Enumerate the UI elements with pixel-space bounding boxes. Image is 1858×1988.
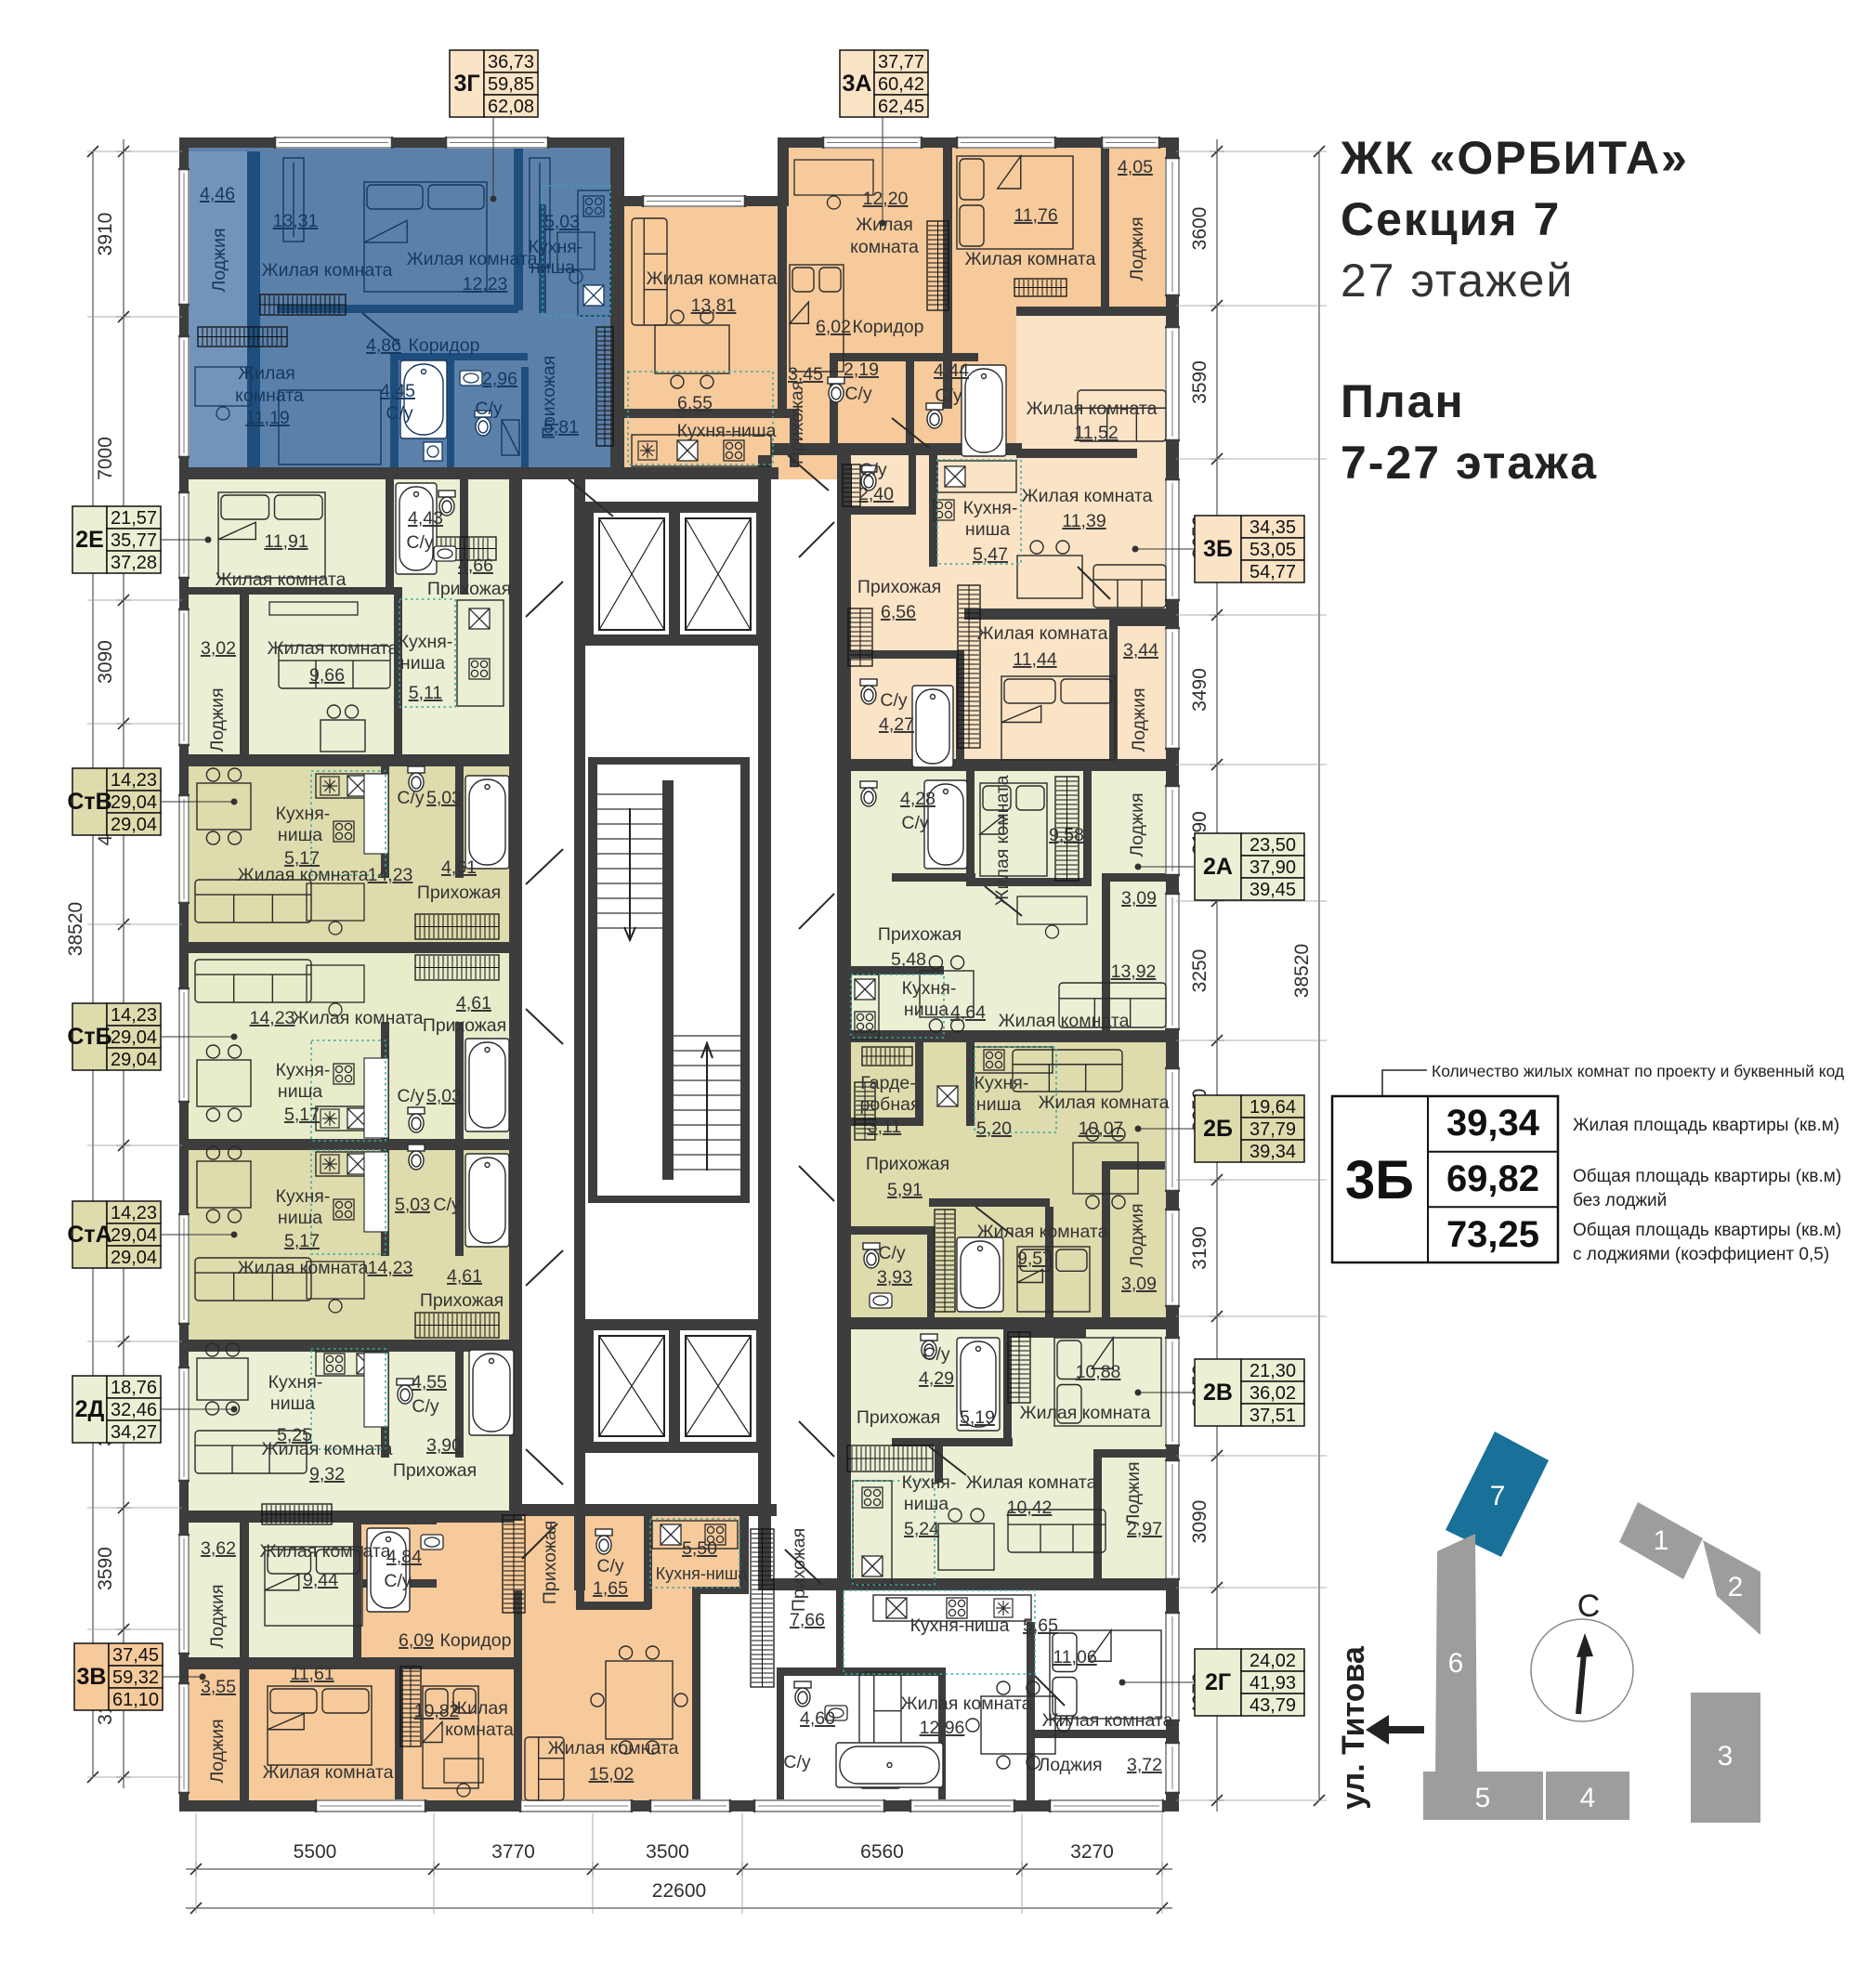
svg-text:4,61: 4,61 [441, 857, 477, 878]
svg-text:3090: 3090 [95, 640, 116, 684]
svg-text:19,64: 19,64 [1250, 1097, 1296, 1118]
svg-text:Лоджия: Лоджия [1127, 1203, 1147, 1267]
svg-text:ниша: ниша [904, 1000, 949, 1020]
svg-text:Жилая комната: Жилая комната [1022, 486, 1153, 506]
svg-text:3490: 3490 [1189, 668, 1210, 712]
svg-text:5,03: 5,03 [426, 1086, 462, 1106]
svg-text:С/у: С/у [901, 813, 929, 833]
svg-text:37,28: 37,28 [111, 553, 157, 573]
svg-text:Жилая комната: Жилая комната [262, 260, 393, 281]
svg-text:35,77: 35,77 [111, 530, 157, 551]
svg-text:Жилая площадь квартиры (кв.м): Жилая площадь квартиры (кв.м) [1573, 1116, 1839, 1135]
svg-text:3770: 3770 [491, 1841, 535, 1863]
svg-text:4,61: 4,61 [447, 1266, 482, 1287]
svg-text:5,24: 5,24 [904, 1519, 939, 1539]
svg-text:23,50: 23,50 [1250, 835, 1296, 856]
svg-text:11,19: 11,19 [245, 408, 289, 428]
svg-text:4,46: 4,46 [200, 184, 235, 204]
svg-text:53,05: 53,05 [1250, 540, 1296, 560]
svg-text:36,73: 36,73 [488, 52, 534, 72]
svg-text:2Г: 2Г [1205, 1669, 1231, 1695]
svg-text:3,09: 3,09 [1121, 888, 1157, 909]
svg-text:Жилая комната: Жилая комната [966, 1472, 1097, 1493]
svg-text:4,64: 4,64 [950, 1002, 986, 1023]
svg-text:2Д: 2Д [75, 1396, 105, 1422]
svg-text:7-27 этажа: 7-27 этажа [1341, 437, 1598, 489]
svg-text:39,34: 39,34 [1446, 1103, 1540, 1144]
svg-text:ниша: ниша [278, 825, 322, 845]
svg-text:10,88: 10,88 [1076, 1362, 1121, 1382]
svg-text:5,03: 5,03 [426, 788, 462, 808]
svg-text:2Е: 2Е [75, 527, 104, 553]
svg-text:Жилая комната: Жилая комната [262, 1439, 393, 1459]
svg-text:Прихожая: Прихожая [866, 1154, 949, 1174]
svg-text:24,02: 24,02 [1250, 1651, 1296, 1671]
svg-text:С/у: С/у [859, 460, 887, 480]
svg-text:4,55: 4,55 [412, 1372, 447, 1393]
svg-text:Количество жилых комнат по про: Количество жилых комнат по проекту и бук… [1432, 1062, 1844, 1080]
svg-text:13,31: 13,31 [273, 211, 319, 231]
svg-text:3,11: 3,11 [868, 1117, 902, 1137]
svg-text:Прихожая: Прихожая [857, 577, 941, 597]
svg-text:3,55: 3,55 [201, 1677, 236, 1697]
svg-text:38520: 38520 [65, 902, 86, 956]
svg-text:41,93: 41,93 [1250, 1673, 1296, 1694]
svg-text:4,29: 4,29 [919, 1368, 954, 1389]
svg-text:Жилая комната: Жилая комната [1020, 1403, 1151, 1423]
svg-text:Гарде-: Гарде- [860, 1073, 915, 1093]
svg-text:Жилая: Жилая [451, 1698, 508, 1719]
svg-text:Жилая комната: Жилая комната [965, 249, 1096, 269]
svg-text:39,34: 39,34 [1250, 1142, 1296, 1162]
svg-text:Кухня-: Кухня- [963, 498, 1018, 518]
svg-text:5,11: 5,11 [409, 683, 443, 703]
svg-text:9,58: 9,58 [1049, 825, 1084, 845]
svg-text:Прихожая: Прихожая [878, 924, 962, 945]
svg-text:Общая площадь квартиры (кв.м): Общая площадь квартиры (кв.м) [1573, 1221, 1841, 1240]
svg-text:ниша: ниша [278, 1208, 322, 1228]
svg-text:9,32: 9,32 [309, 1464, 345, 1484]
svg-text:Общая площадь квартиры (кв.м): Общая площадь квартиры (кв.м) [1573, 1167, 1841, 1186]
svg-text:4,66: 4,66 [458, 556, 493, 576]
svg-text:6,02: 6,02 [816, 317, 851, 337]
svg-text:12,23: 12,23 [463, 274, 508, 294]
svg-text:3910: 3910 [95, 213, 116, 256]
svg-text:Кухня-: Кухня- [975, 1073, 1029, 1093]
svg-text:5,03: 5,03 [395, 1195, 430, 1215]
svg-text:5,50: 5,50 [682, 1538, 717, 1559]
svg-text:3,72: 3,72 [1127, 1755, 1162, 1775]
svg-text:С/у: С/у [596, 1556, 624, 1576]
svg-text:Кухня-: Кухня- [268, 1372, 323, 1393]
svg-text:54,77: 54,77 [1250, 562, 1296, 582]
svg-text:Лоджия: Лоджия [1129, 687, 1149, 752]
svg-text:62,45: 62,45 [878, 97, 924, 117]
svg-text:34,35: 34,35 [1250, 517, 1296, 538]
svg-text:С/у: С/у [412, 1396, 439, 1417]
svg-text:7,66: 7,66 [790, 1610, 825, 1630]
svg-text:5,17: 5,17 [284, 1231, 320, 1251]
svg-text:3А: 3А [843, 71, 872, 97]
svg-text:ул. Титова: ул. Титова [1336, 1645, 1371, 1810]
svg-text:Прихожая: Прихожая [787, 381, 807, 464]
svg-text:37,45: 37,45 [112, 1645, 159, 1666]
svg-text:СтВ: СтВ [67, 789, 111, 815]
svg-text:2А: 2А [1203, 854, 1233, 880]
svg-text:13,92: 13,92 [1111, 961, 1157, 982]
svg-text:ниша: ниша [400, 653, 445, 674]
svg-text:Прихожая: Прихожая [789, 1528, 809, 1612]
svg-text:6,55: 6,55 [677, 393, 713, 413]
svg-text:Жилая комната: Жилая комната [977, 623, 1108, 644]
svg-text:3190: 3190 [1189, 1226, 1210, 1270]
svg-text:Жилая комната: Жилая комната [647, 268, 778, 289]
svg-text:60,42: 60,42 [878, 74, 924, 95]
svg-text:6: 6 [1448, 1648, 1464, 1679]
svg-text:61,10: 61,10 [112, 1690, 159, 1710]
svg-text:Прихожая: Прихожая [420, 1290, 504, 1311]
svg-text:12,20: 12,20 [863, 189, 909, 209]
svg-text:Прихожая: Прихожая [417, 883, 501, 903]
svg-text:37,90: 37,90 [1250, 857, 1296, 878]
svg-text:С/у: С/у [935, 386, 962, 406]
svg-text:29,04: 29,04 [111, 1225, 157, 1246]
svg-text:29,04: 29,04 [111, 1027, 157, 1048]
svg-text:5,47: 5,47 [973, 544, 1008, 565]
svg-text:3,93: 3,93 [877, 1267, 912, 1288]
svg-text:14,23: 14,23 [111, 1203, 157, 1223]
svg-text:14,23: 14,23 [368, 865, 413, 885]
svg-text:С/у: С/у [922, 1344, 950, 1365]
svg-text:4,86: 4,86 [366, 335, 401, 356]
svg-text:73,25: 73,25 [1446, 1214, 1539, 1255]
svg-text:Жилая комната: Жилая комната [260, 1541, 391, 1562]
svg-text:22600: 22600 [652, 1880, 706, 1902]
svg-text:Жилая комната: Жилая комната [216, 569, 347, 590]
svg-text:3Б: 3Б [1345, 1150, 1414, 1210]
svg-text:37,77: 37,77 [878, 52, 924, 72]
svg-text:11,91: 11,91 [264, 531, 307, 552]
svg-text:Жилая комната: Жилая комната [407, 249, 538, 269]
svg-text:9,57: 9,57 [1017, 1249, 1053, 1269]
svg-text:Прихожая: Прихожая [393, 1460, 477, 1481]
svg-text:Кухня-: Кухня- [276, 1186, 331, 1207]
svg-text:9,66: 9,66 [309, 665, 345, 686]
svg-text:21,57: 21,57 [111, 508, 157, 529]
svg-text:2: 2 [1728, 1572, 1744, 1602]
svg-text:с лоджиями (коэффициент 0,5): с лоджиями (коэффициент 0,5) [1573, 1245, 1829, 1264]
svg-text:4,60: 4,60 [800, 1708, 835, 1729]
svg-text:37,51: 37,51 [1250, 1406, 1296, 1426]
svg-text:Коридор: Коридор [852, 317, 923, 337]
svg-text:43,79: 43,79 [1250, 1695, 1296, 1716]
svg-text:3,09: 3,09 [1121, 1274, 1157, 1294]
svg-text:59,85: 59,85 [488, 74, 534, 95]
svg-text:3Б: 3Б [1203, 536, 1233, 562]
svg-text:7: 7 [1490, 1481, 1506, 1511]
svg-text:11,76: 11,76 [1014, 205, 1057, 226]
svg-text:14,23: 14,23 [368, 1258, 413, 1278]
svg-text:Прихожая: Прихожая [423, 1015, 506, 1036]
svg-text:39,45: 39,45 [1250, 880, 1296, 900]
svg-text:2,96: 2,96 [482, 369, 517, 389]
svg-text:С/у: С/у [783, 1752, 811, 1772]
svg-text:комната: комната [445, 1720, 514, 1740]
svg-text:5: 5 [1475, 1783, 1491, 1813]
svg-text:С/у: С/у [384, 1571, 412, 1591]
svg-text:5,17: 5,17 [284, 1105, 320, 1125]
svg-text:2,97: 2,97 [1127, 1519, 1162, 1539]
svg-text:Кухня-ниша: Кухня-ниша [910, 1615, 1010, 1636]
svg-text:62,08: 62,08 [488, 97, 534, 117]
svg-text:3270: 3270 [1070, 1841, 1114, 1863]
svg-text:4,44: 4,44 [934, 360, 969, 381]
svg-text:21,30: 21,30 [1250, 1361, 1296, 1381]
svg-text:37,79: 37,79 [1250, 1119, 1296, 1140]
svg-text:Жилая комната: Жилая комната [1042, 1710, 1173, 1731]
svg-text:Жилая комната: Жилая комната [992, 775, 1013, 906]
svg-text:29,04: 29,04 [111, 792, 157, 813]
svg-text:С/у: С/у [880, 690, 908, 711]
svg-text:4,45: 4,45 [380, 381, 415, 401]
svg-text:Лоджия: Лоджия [207, 1719, 228, 1783]
svg-text:Жилая комната: Жилая комната [238, 865, 369, 885]
svg-text:2В: 2В [1203, 1380, 1233, 1406]
svg-text:ниша: ниша [270, 1393, 315, 1414]
svg-text:6560: 6560 [860, 1841, 904, 1863]
svg-text:Жилая комната: Жилая комната [263, 1762, 394, 1783]
svg-text:14,23: 14,23 [111, 770, 157, 791]
svg-text:14,23: 14,23 [250, 1008, 295, 1028]
svg-text:6,09: 6,09 [399, 1630, 434, 1651]
svg-text:3250: 3250 [1189, 949, 1210, 993]
svg-text:Кухня-: Кухня- [529, 237, 583, 257]
svg-text:5,65: 5,65 [1023, 1615, 1058, 1636]
svg-text:10,42: 10,42 [1007, 1498, 1053, 1518]
svg-text:32,46: 32,46 [111, 1400, 157, 1420]
svg-text:Лоджия: Лоджия [1038, 1755, 1102, 1775]
svg-text:9,44: 9,44 [303, 1570, 338, 1590]
svg-text:Кухня-: Кухня- [902, 978, 957, 999]
svg-text:36,02: 36,02 [1250, 1383, 1296, 1404]
svg-text:4: 4 [1580, 1783, 1596, 1813]
svg-text:Лоджия: Лоджия [1127, 216, 1147, 281]
svg-text:38520: 38520 [1291, 944, 1313, 998]
svg-text:Коридор: Коридор [408, 335, 479, 356]
svg-text:С: С [1577, 1589, 1601, 1624]
svg-text:Лоджия: Лоджия [207, 687, 228, 752]
svg-text:С/у: С/у [397, 788, 425, 808]
svg-text:5,03: 5,03 [544, 212, 580, 232]
svg-text:Кухня-: Кухня- [399, 632, 453, 652]
svg-text:4,05: 4,05 [1118, 157, 1153, 177]
svg-text:без лоджий: без лоджий [1573, 1191, 1667, 1210]
svg-text:С/у: С/у [844, 384, 872, 404]
svg-text:С/у: С/у [397, 1086, 425, 1106]
svg-text:ниша: ниша [965, 519, 1010, 540]
svg-text:Жилая комната: Жилая комната [548, 1738, 679, 1759]
svg-text:Кухня-: Кухня- [276, 804, 331, 824]
svg-text:3600: 3600 [1189, 207, 1210, 251]
svg-text:2,40: 2,40 [858, 484, 894, 504]
svg-text:29,04: 29,04 [111, 1248, 157, 1268]
svg-text:ниша: ниша [976, 1094, 1021, 1115]
svg-text:Лоджия: Лоджия [209, 228, 229, 292]
svg-text:3В: 3В [77, 1664, 107, 1690]
svg-text:6,56: 6,56 [881, 602, 916, 622]
svg-text:11,52: 11,52 [1074, 423, 1118, 443]
svg-text:4,84: 4,84 [386, 1547, 422, 1567]
svg-text:Лоджия: Лоджия [1123, 1461, 1144, 1525]
svg-text:С/у: С/у [475, 399, 503, 419]
svg-text:5,20: 5,20 [976, 1118, 1012, 1139]
svg-text:С/у: С/у [878, 1243, 906, 1263]
svg-text:69,82: 69,82 [1446, 1158, 1539, 1199]
svg-text:10,07: 10,07 [1079, 1118, 1124, 1139]
svg-text:11,06: 11,06 [1053, 1647, 1096, 1668]
svg-text:5,91: 5,91 [887, 1180, 922, 1200]
svg-text:3500: 3500 [646, 1841, 689, 1863]
svg-text:Жилая комната: Жилая комната [1039, 1092, 1170, 1113]
svg-text:12,96: 12,96 [920, 1718, 965, 1738]
svg-text:С/у: С/у [406, 532, 434, 553]
svg-text:13,81: 13,81 [691, 295, 737, 316]
svg-text:1: 1 [1654, 1525, 1669, 1556]
svg-text:1,65: 1,65 [593, 1578, 628, 1599]
svg-text:План: План [1341, 375, 1465, 427]
svg-text:робная: робная [859, 1094, 920, 1115]
svg-text:Кухня-ниша: Кухня-ниша [656, 1564, 749, 1583]
svg-text:14,23: 14,23 [111, 1005, 157, 1026]
svg-text:4,61: 4,61 [456, 993, 491, 1014]
svg-text:Кухня-: Кухня- [276, 1060, 331, 1080]
svg-text:11,44: 11,44 [1013, 649, 1057, 670]
svg-text:комната: комната [850, 237, 919, 257]
svg-text:Прихожая: Прихожая [427, 579, 511, 599]
svg-text:Жилая: Жилая [238, 363, 295, 384]
svg-text:3,62: 3,62 [201, 1538, 236, 1559]
svg-text:ниша: ниша [278, 1081, 322, 1102]
svg-text:СтБ: СтБ [67, 1024, 111, 1050]
svg-text:4,27: 4,27 [879, 714, 914, 735]
svg-text:4,28: 4,28 [900, 789, 936, 809]
svg-text:5,81: 5,81 [543, 417, 579, 438]
svg-text:Прихожая: Прихожая [857, 1407, 940, 1428]
svg-text:3Г: 3Г [453, 71, 479, 97]
svg-text:Секция 7: Секция 7 [1341, 193, 1561, 245]
svg-text:4,43: 4,43 [408, 508, 443, 529]
svg-text:Жилая комната: Жилая комната [1027, 399, 1158, 419]
svg-text:3090: 3090 [1189, 1500, 1210, 1544]
svg-text:11,39: 11,39 [1062, 511, 1106, 531]
svg-text:15,02: 15,02 [589, 1764, 635, 1785]
svg-text:Жилая комната: Жилая комната [977, 1222, 1108, 1242]
svg-text:С/у: С/у [433, 1195, 461, 1215]
svg-text:18,76: 18,76 [111, 1378, 157, 1398]
svg-text:5,48: 5,48 [891, 949, 926, 970]
svg-text:ЖК «ОРБИТА»: ЖК «ОРБИТА» [1340, 132, 1689, 184]
svg-text:ниша: ниша [904, 1494, 949, 1514]
svg-text:3,44: 3,44 [1123, 640, 1158, 660]
svg-text:Жилая комната: Жилая комната [999, 1011, 1130, 1031]
svg-text:Кухня-: Кухня- [902, 1472, 957, 1493]
svg-text:ниша: ниша [530, 257, 575, 278]
svg-text:2,19: 2,19 [844, 360, 879, 380]
svg-text:Кухня-ниша: Кухня-ниша [677, 421, 777, 441]
svg-text:комната: комната [235, 386, 304, 406]
svg-text:11,61: 11,61 [290, 1664, 334, 1684]
svg-text:Коридор: Коридор [439, 1630, 511, 1651]
svg-text:Лоджия: Лоджия [207, 1584, 228, 1648]
svg-text:5,19: 5,19 [960, 1407, 995, 1428]
svg-text:С/у: С/у [386, 403, 413, 424]
svg-text:7000: 7000 [95, 437, 116, 480]
svg-text:29,04: 29,04 [111, 815, 157, 835]
svg-text:Прихожая: Прихожая [540, 1521, 560, 1604]
svg-text:Жилая комната: Жилая комната [238, 1258, 369, 1278]
svg-text:59,32: 59,32 [112, 1668, 159, 1688]
svg-text:29,04: 29,04 [111, 1050, 157, 1070]
svg-text:3,90: 3,90 [426, 1435, 462, 1456]
svg-text:3,02: 3,02 [201, 638, 236, 659]
svg-text:Жилая комната: Жилая комната [268, 638, 399, 659]
svg-text:3: 3 [1718, 1741, 1734, 1772]
svg-text:Жилая комната: Жилая комната [901, 1694, 1032, 1714]
svg-text:3590: 3590 [95, 1547, 116, 1590]
svg-text:5500: 5500 [294, 1841, 337, 1863]
svg-text:Жилая комната: Жилая комната [293, 1008, 424, 1028]
svg-text:2Б: 2Б [1203, 1116, 1233, 1142]
svg-text:34,27: 34,27 [111, 1422, 157, 1443]
svg-text:Лоджия: Лоджия [1127, 792, 1147, 857]
svg-text:3590: 3590 [1189, 360, 1210, 404]
svg-text:27 этажей: 27 этажей [1341, 255, 1574, 307]
svg-text:СтА: СтА [67, 1222, 111, 1248]
